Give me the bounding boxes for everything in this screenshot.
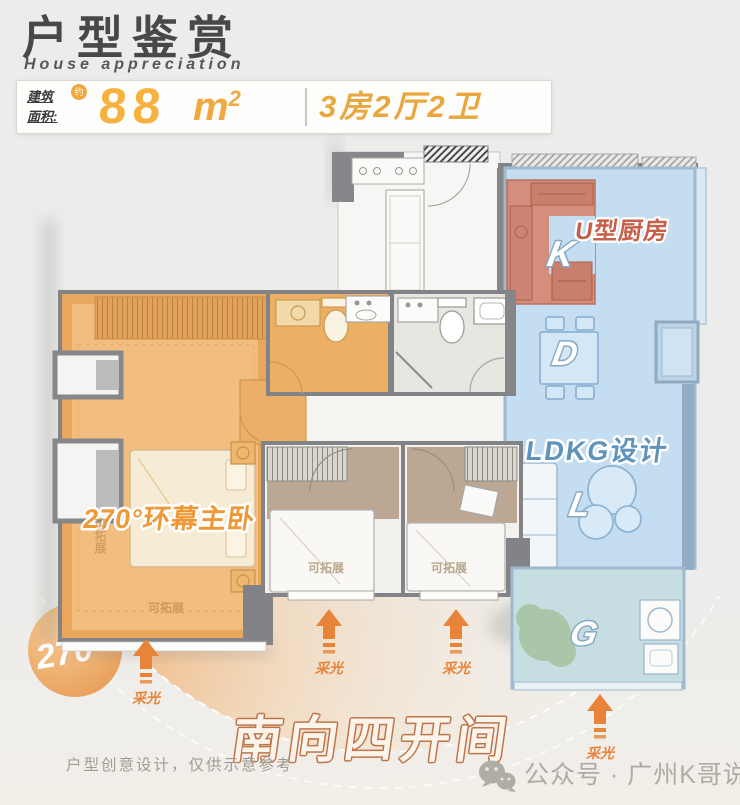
area-label: 建筑 面积: (27, 87, 57, 127)
ldkg-label: LDKG设计 (524, 435, 671, 466)
daylight-label: 采光 (442, 660, 472, 676)
hall-closet (386, 190, 424, 296)
bath-living-wall (505, 292, 515, 394)
left-bay-window-1 (55, 353, 121, 397)
watermark-text: 公众号 · 广州K哥说房 (524, 761, 740, 789)
entry-door-hatch (424, 146, 488, 162)
hallway-floor (300, 392, 515, 446)
area-unit-exp: 2 (229, 86, 241, 111)
daylight-label: 采光 (132, 690, 162, 706)
shared-bathroom (392, 292, 514, 394)
bay-window-inner (662, 328, 692, 376)
bedroom-2 (263, 443, 403, 600)
master-window-sill (62, 642, 266, 651)
area-value: 88 (97, 77, 169, 135)
daylight-arrow (587, 694, 613, 739)
kitchen-label: U型厨房 (574, 217, 671, 245)
area-label-line2: 面积: (27, 107, 57, 127)
right-window-hatch (642, 157, 696, 168)
watermark: 公众号 · 广州K哥说房 (479, 761, 740, 793)
area-unit: m2 (193, 85, 241, 130)
living-right-wall (682, 384, 694, 570)
expandable-label-master-side: 可拓展 (93, 518, 107, 555)
expandable-label-master: 可拓展 (148, 600, 184, 615)
bedroom-3 (403, 443, 521, 600)
vanity-counters (346, 296, 392, 322)
room-layout-text: 3房2厅2卫 (319, 81, 482, 133)
floorplan-poster: { "header": { "title": "户型鉴赏", "subtitle… (0, 0, 740, 805)
disclaimer: 户型创意设计，仅供示意参考 (66, 755, 294, 774)
master-wardrobe (95, 297, 268, 339)
approx-badge: 约 (71, 84, 87, 100)
daylight-label: 采光 (315, 660, 345, 676)
bedroom2-window (288, 591, 374, 600)
area-info-box: 建筑 面积: 约 88 m2 3房2厅2卫 (16, 80, 552, 134)
wechat-icon (479, 761, 516, 793)
area-unit-m: m (193, 85, 229, 129)
divider (305, 88, 307, 126)
area-label-line1: 建筑 (27, 87, 57, 107)
expandable-label-bedroom3: 可拓展 (431, 560, 467, 575)
washing-machine (640, 600, 680, 674)
daylight-label: 采光 (586, 745, 616, 761)
shared-toilet (438, 298, 466, 343)
kitchen-window-hatch (512, 154, 638, 167)
bedroom3-window (420, 591, 498, 600)
master-bedroom-label: 270°环幕主卧 (81, 503, 257, 534)
master-bath-sink (276, 300, 320, 326)
page-subtitle: House appreciation (24, 56, 244, 74)
shared-sink (474, 298, 510, 324)
bedroom2-bed (270, 510, 374, 592)
expandable-label-bedroom2: 可拓展 (308, 560, 344, 575)
bedroom3-bed (407, 523, 505, 591)
balcony-sill (514, 682, 682, 690)
bedroom3-wardrobe (465, 447, 517, 481)
shoe-cabinet (352, 158, 424, 184)
